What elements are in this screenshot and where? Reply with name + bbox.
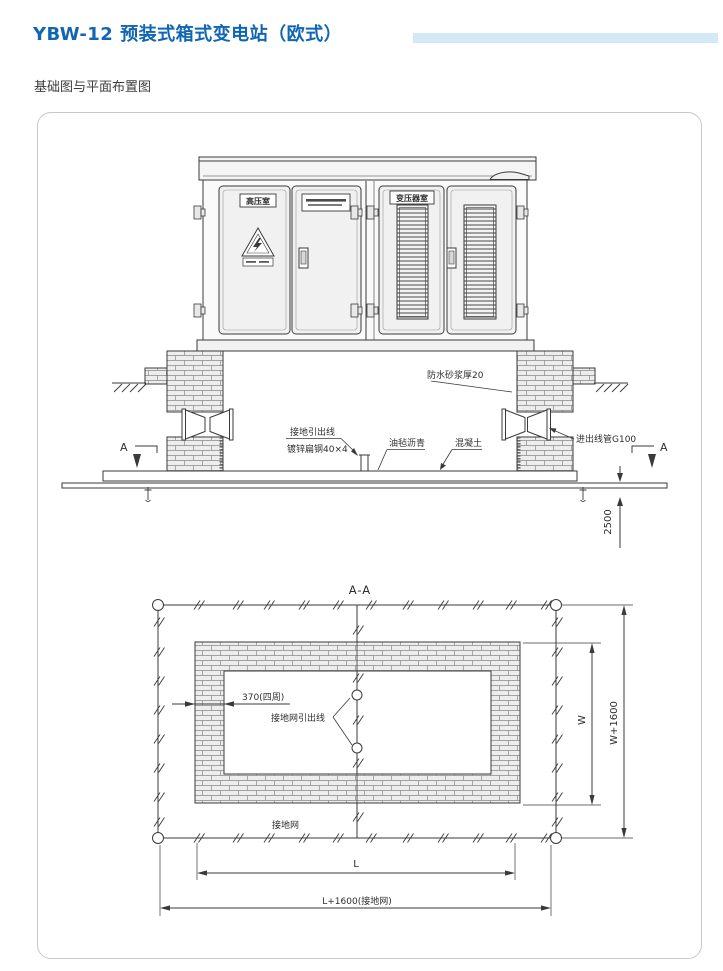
- wall-thickness-dim: 370(四周): [172, 692, 290, 707]
- dim-l: L: [197, 843, 515, 880]
- dim-l-label: L: [353, 859, 359, 870]
- dim-l-outer-label: L+1600(接地网): [322, 895, 391, 907]
- catalog-page: YBW-12 预装式箱式变电站（欧式） 基础图与平面布置图: [0, 0, 723, 971]
- plan-drawing: A-A: [153, 583, 634, 916]
- base-layer: [62, 483, 667, 488]
- label-flat-steel: 镀锌扁钢40×4: [287, 443, 348, 455]
- grid-lead-annotation: 接地网引出线: [271, 698, 352, 745]
- grid-lead-label: 接地网引出线: [271, 712, 325, 724]
- section-letter-right: A: [660, 441, 668, 454]
- hv-room-label: 高压室: [246, 196, 270, 206]
- dim-w-outer: W+1600: [562, 605, 633, 838]
- anchor-right: [580, 487, 587, 502]
- nameplate: [302, 194, 350, 211]
- louver-vent-right: [464, 205, 496, 319]
- transformer-room-plate: 变压器室: [390, 191, 434, 204]
- hv-room-plate: 高压室: [240, 194, 276, 207]
- section-marker-left: A: [120, 441, 157, 468]
- wall-thickness-label: 370(四周): [242, 692, 284, 703]
- door-handle-left: [299, 248, 308, 268]
- ground-hatch-right: [594, 383, 628, 392]
- base-skirt: [197, 340, 534, 351]
- dim-w: W: [523, 643, 601, 805]
- ground-hatch-left: [112, 383, 146, 392]
- label-ground-lead: 接地引出线: [290, 426, 335, 438]
- roof: [199, 157, 536, 180]
- plan-title: A-A: [349, 583, 371, 597]
- dim-w-label: W: [577, 715, 588, 725]
- dim-l-outer: L+1600(接地网): [160, 845, 551, 916]
- concrete-slab: [103, 471, 577, 481]
- label-waterproof: 防水砂浆厚20: [427, 369, 484, 381]
- label-concrete: 混凝土: [455, 437, 482, 449]
- label-conduit: 进出线管G100: [576, 433, 636, 445]
- technical-drawing: 高压室 变压器室: [0, 0, 723, 971]
- transformer-room-label: 变压器室: [396, 193, 428, 203]
- conduit-sleeve-left: [182, 409, 233, 440]
- conduit-sleeve-right: [502, 409, 551, 440]
- depth-dimension: 2500: [603, 466, 623, 548]
- door-handle-right: [447, 248, 456, 268]
- anchor-left: [145, 487, 152, 502]
- grounding-rod: [359, 455, 370, 471]
- dim-w-outer-label: W+1600: [609, 701, 620, 745]
- section-marker-right: A: [632, 441, 668, 468]
- elevation-drawing: 高压室 变压器室: [62, 157, 668, 548]
- section-letter-left: A: [120, 441, 128, 454]
- grid-label: 接地网: [272, 819, 299, 831]
- louver-vent-left: [397, 205, 428, 319]
- depth-dim-label: 2500: [603, 509, 614, 534]
- right-pier: [517, 351, 595, 472]
- label-asphalt-felt: 油毡沥青: [389, 437, 425, 449]
